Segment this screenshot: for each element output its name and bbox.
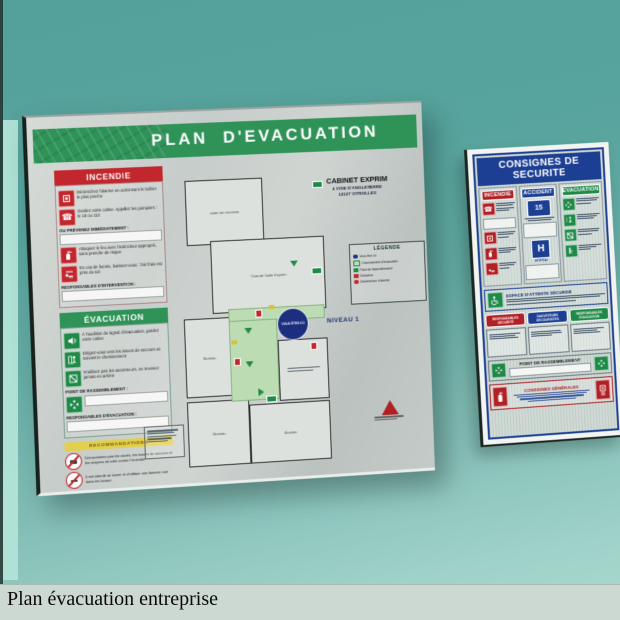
extinguisher-marker-icon — [255, 309, 262, 317]
guide-icon — [564, 244, 578, 258]
incendie-item: ☎ — [481, 201, 515, 216]
wall-corner-highlight — [3, 120, 18, 580]
legend: LÉGENDE Vous êtes ici Cheminement d'évac… — [349, 241, 427, 305]
incendie-item — [483, 230, 517, 245]
extinguisher-icon — [60, 246, 77, 264]
extinguisher-marker-icon — [234, 358, 241, 366]
hospital-sign: H — [531, 239, 551, 259]
company-block: CABINET EXPRIM 4 VOIE D'ANGLETERRE 13127… — [302, 173, 411, 198]
assembly-point-icon — [66, 396, 83, 414]
accident-field — [523, 221, 557, 238]
fire-extinguisher-icon — [492, 387, 508, 408]
no-blocking-icon — [65, 453, 82, 471]
notes-box — [144, 424, 185, 459]
no-elevator-icon — [564, 228, 578, 242]
evacuation-item — [563, 211, 602, 226]
general-instructions-section: CONSIGNES GÉNÉRALES — [489, 376, 614, 411]
incendie-field — [482, 217, 516, 230]
incendie-item — [484, 245, 518, 260]
exit-sign-icon — [311, 267, 322, 274]
evacuation-arrow-icon — [244, 328, 252, 334]
evacuation-item — [562, 196, 601, 211]
no-elevator-icon — [65, 370, 82, 388]
door-marker — [269, 305, 275, 309]
incendie-row: Déclenchez l'alarme en actionnant le boî… — [58, 186, 161, 207]
phone-icon: ☎ — [58, 209, 75, 227]
incendie-section: Déclenchez l'alarme en actionnant le boî… — [55, 181, 168, 308]
room-technical — [278, 337, 330, 401]
room-office-2: Bureau — [187, 399, 252, 468]
column-evacuation: EVACUATION — [559, 181, 608, 282]
exit-sign-icon — [266, 395, 277, 402]
evacuation-path-icon — [353, 260, 359, 267]
no-smoking-icon — [66, 471, 83, 489]
exit-man-icon — [64, 351, 81, 369]
sign-frame: CONSIGNES DE SECURITE INCENDIE ☎ — [472, 147, 619, 440]
evacuation-arrow-icon — [246, 361, 254, 367]
pill-responsables-evacuation: RESPONSABLES ÉVACUATION — [569, 307, 609, 322]
incendie-item — [485, 261, 519, 276]
room-office-3: Bureau — [249, 400, 332, 464]
column-incendie: INCENDIE ☎ — [478, 186, 522, 287]
pill-sauveteurs: SAUVETEURS SECOURISTES — [527, 310, 568, 326]
wheelchair-assist-icon — [487, 292, 504, 309]
evacuation-plan-board: PLAN D'EVACUATION INCENDIE Déclenchez l'… — [22, 101, 435, 497]
exit-man-icon — [563, 213, 577, 227]
incendie-row: ☎ Gardez votre calme. Appelez les pompie… — [58, 205, 161, 227]
sign-title: CONSIGNES DE SECURITE — [476, 151, 601, 186]
alarm-button-icon — [58, 190, 75, 208]
caption-bar: Plan évacuation entreprise — [0, 584, 620, 620]
you-are-here-icon — [353, 254, 357, 259]
assembly-point-icon — [354, 268, 358, 273]
evacuation-arrow-icon — [258, 388, 264, 396]
pill-responsables-securite: RESPONSABLES SÉCURITÉ — [485, 313, 526, 329]
plan-title-band: PLAN D'EVACUATION — [32, 114, 417, 163]
sign-columns: INCENDIE ☎ — [478, 181, 607, 287]
maker-logo — [374, 399, 407, 422]
fire-alarm-icon — [595, 380, 611, 401]
alarm-trigger-icon — [354, 280, 358, 285]
you-are-here-badge: VOUS ÊTES ICI — [276, 307, 309, 341]
logo-triangle-icon — [381, 400, 399, 416]
alarm-button-icon — [483, 231, 497, 245]
evacuation-arrow-icon — [290, 260, 298, 266]
extinguisher-marker-icon — [310, 342, 317, 350]
extinguisher-icon — [354, 274, 358, 279]
room-main: Grande Salle Exprim — [210, 236, 326, 314]
accident-field — [525, 263, 559, 280]
responsables-fields — [486, 322, 611, 358]
extinguisher-icon — [484, 247, 498, 261]
caption-text: Plan évacuation entreprise — [0, 585, 620, 611]
phone-icon: ☎ — [481, 202, 495, 216]
evacuation-item — [564, 242, 603, 257]
crawl-low-icon — [61, 265, 78, 283]
crawl-low-icon — [485, 262, 499, 276]
room-meeting: Salle de Réunion — [184, 178, 264, 247]
evacuation-item — [564, 227, 603, 242]
safety-instructions-sign: CONSIGNES DE SECURITE INCENDIE ☎ — [464, 142, 620, 447]
level-label: NIVEAU 1 — [327, 316, 360, 325]
assembly-point-icon — [491, 363, 507, 379]
door-marker — [231, 340, 237, 344]
assembly-point-icon — [562, 198, 576, 212]
assembly-point-icon — [594, 356, 610, 372]
column-accident: ACCIDENT 15 H HÔPITAL — [518, 184, 562, 285]
room-office-1: Bureau — [184, 317, 236, 399]
samu-15-sign: 15 — [526, 198, 551, 216]
floor-plan: Salle de Réunion Grande Salle Exprim Bur… — [174, 169, 337, 470]
alarm-sound-icon — [63, 332, 80, 350]
rally-point-field — [84, 391, 168, 407]
evacuation-section: À l'audition du signal d'évacuation, gar… — [60, 322, 172, 438]
hospital-label: HÔPITAL — [525, 257, 558, 263]
